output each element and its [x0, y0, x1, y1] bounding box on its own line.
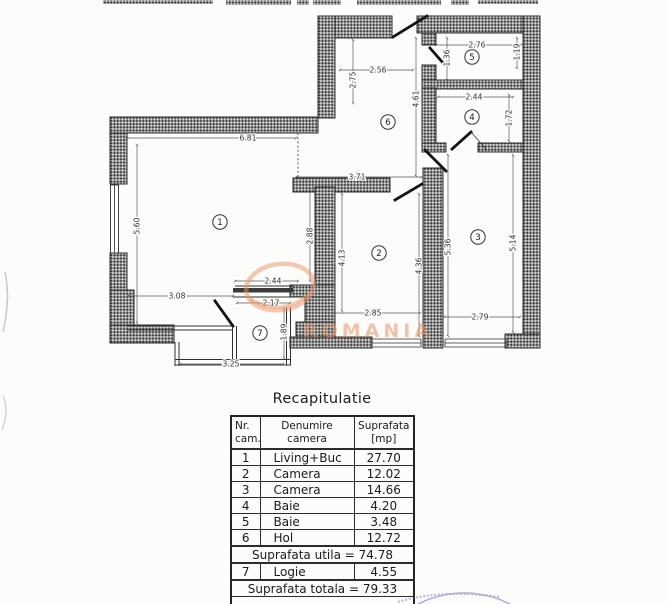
table-row: 5 Baie 3.48	[231, 514, 414, 530]
table-row: 7 Logie 4.55	[231, 563, 414, 580]
col-header-suprafata: Suprafata[mp]	[354, 416, 414, 449]
room-number-2: 2	[372, 246, 386, 260]
dim-label: 5.36	[444, 238, 453, 255]
cell-name: Camera	[260, 466, 354, 482]
cell-area: 4.20	[354, 498, 414, 514]
dim-label: 1.89	[280, 323, 289, 340]
paper-edge-artifacts	[2, 272, 7, 430]
dim-label: 2.88	[306, 227, 315, 244]
dim-label: 5.60	[133, 217, 142, 234]
table-row: 6 Hol 12.72	[231, 530, 414, 547]
room-number-7: 7	[253, 326, 267, 340]
summary-row-totala: Suprafata totala = 79.33	[231, 580, 414, 597]
svg-text:1: 1	[217, 218, 222, 228]
dim-label: 4.61	[412, 90, 421, 107]
top-scan-remnants	[103, 0, 538, 5]
col-header-nr-cam: Nr.cam.	[231, 416, 260, 449]
svg-text:4: 4	[469, 113, 474, 123]
dim-label: 2.76	[469, 41, 486, 50]
room-number-3: 3	[471, 230, 485, 244]
dim-label: 4.13	[338, 249, 347, 266]
col-header-denumire: Denumirecamera	[260, 416, 354, 449]
dim-label: 1.19	[513, 43, 522, 60]
table-row: 3 Camera 14.66	[231, 482, 414, 498]
empty-cell	[231, 597, 414, 604]
recap-title: Recapitulatie	[231, 391, 413, 407]
scanned-floorplan-page: 6.81 3.71 2.56 2.76 2.44 2.44 2.17 3.08 …	[0, 0, 667, 604]
cell-name: Hol	[260, 530, 354, 547]
cell-nr: 1	[231, 449, 260, 466]
cell-nr: 6	[231, 530, 260, 547]
summary-row-utila: Suprafata utila = 74.78	[231, 546, 414, 563]
suprafata-totala: Suprafata totala = 79.33	[231, 580, 414, 597]
room-number-5: 5	[465, 50, 479, 64]
table-header-row: Nr.cam. Denumirecamera Suprafata[mp]	[231, 416, 414, 449]
cell-name: Logie	[260, 563, 354, 580]
svg-text:5: 5	[469, 53, 474, 63]
cell-nr: 7	[231, 563, 260, 580]
camera2-door-leaf	[395, 184, 422, 200]
table-row: 2 Camera 12.02	[231, 466, 414, 482]
baie4-door-leaf	[452, 132, 471, 149]
svg-text:2: 2	[376, 249, 381, 259]
cell-area: 27.70	[354, 449, 414, 466]
dim-label: 2.44	[265, 277, 282, 286]
recap-table: Nr.cam. Denumirecamera Suprafata[mp] 1 L…	[230, 415, 415, 604]
cell-name: Baie	[260, 514, 354, 530]
dim-label: 6.81	[240, 134, 257, 143]
cell-area: 14.66	[354, 482, 414, 498]
room-number-4: 4	[465, 110, 479, 124]
room-number-6: 6	[381, 115, 395, 129]
table-row: 1 Living+Buc 27.70	[231, 449, 414, 466]
room-number-1: 1	[213, 215, 227, 229]
dim-label: 4.36	[415, 257, 424, 274]
cell-area: 3.48	[354, 514, 414, 530]
cell-nr: 3	[231, 482, 260, 498]
dim-label: 2.44	[466, 93, 483, 102]
cell-nr: 5	[231, 514, 260, 530]
dim-label: 3.71	[349, 173, 366, 182]
svg-text:3: 3	[475, 233, 480, 243]
dim-label: 2.56	[370, 66, 387, 75]
cell-name: Camera	[260, 482, 354, 498]
dim-label: 3.08	[169, 292, 186, 301]
cell-nr: 4	[231, 498, 260, 514]
dim-label: 5.14	[509, 234, 518, 251]
dim-label: 2.75	[349, 71, 358, 88]
svg-text:7: 7	[257, 329, 262, 339]
table-row-clipped	[231, 597, 414, 604]
watermark-text: ROMANIA	[303, 320, 433, 342]
svg-text:6: 6	[385, 118, 390, 128]
cell-area: 4.55	[354, 563, 414, 580]
dim-label: 3.25	[223, 360, 240, 369]
table-row: 4 Baie 4.20	[231, 498, 414, 514]
cell-nr: 2	[231, 466, 260, 482]
cell-area: 12.72	[354, 530, 414, 547]
cell-name: Living+Buc	[260, 449, 354, 466]
suprafata-utila: Suprafata utila = 74.78	[231, 546, 414, 563]
cell-area: 12.02	[354, 466, 414, 482]
dim-label: 2.79	[472, 313, 489, 322]
dim-label: 1.36	[443, 49, 452, 66]
cell-name: Baie	[260, 498, 354, 514]
dim-label: 2.85	[365, 309, 382, 318]
dim-label: 1.72	[505, 109, 514, 126]
